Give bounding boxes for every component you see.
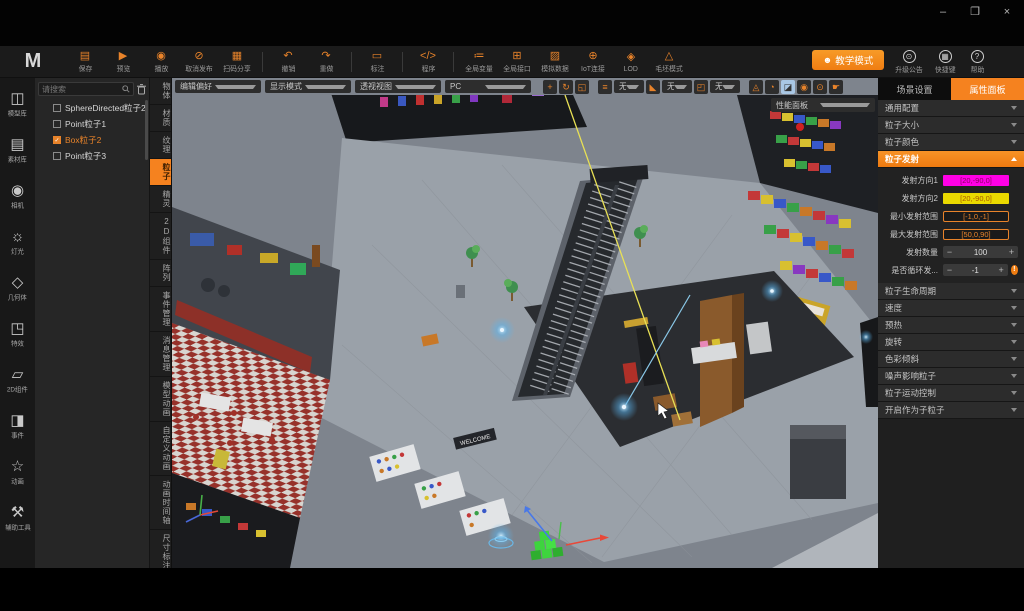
section-color-tilt[interactable]: 色彩倾斜 bbox=[878, 351, 1024, 368]
chevron-down-icon bbox=[722, 85, 735, 89]
search-icon bbox=[122, 85, 130, 93]
geometry-icon: ◇ bbox=[12, 274, 24, 292]
sidebar-item-animation[interactable]: ☆动画 bbox=[0, 450, 35, 494]
edit-preference-dropdown[interactable]: 编辑偏好 bbox=[175, 80, 261, 93]
play-button[interactable]: ◉播放 bbox=[142, 46, 180, 78]
iot-connect-button[interactable]: ⊕IoT连接 bbox=[574, 46, 612, 78]
checkbox[interactable] bbox=[53, 104, 61, 112]
title-bar: – ❐ × bbox=[0, 0, 1024, 46]
toolbar-separator bbox=[351, 52, 352, 72]
section-particle-lifecycle[interactable]: 粒子生命周期 bbox=[878, 283, 1024, 300]
mode-tab-event-manage[interactable]: 事件管理 bbox=[150, 287, 172, 332]
emission-count-stepper[interactable]: − 100 + bbox=[943, 246, 1018, 258]
sidebar-item-asset-library[interactable]: ▤素材库 bbox=[0, 128, 35, 172]
undo-icon: ↶ bbox=[283, 50, 292, 63]
save-button[interactable]: ▤保存 bbox=[66, 46, 104, 78]
section-speed[interactable]: 速度 bbox=[878, 300, 1024, 317]
global-variables-button[interactable]: ≔全局变量 bbox=[460, 46, 498, 78]
mode-tab-dimension[interactable]: 尺寸标注 bbox=[150, 530, 172, 568]
angle-snap-icon[interactable]: ◣ bbox=[646, 80, 660, 94]
tab-scene-settings[interactable]: 场景设置 bbox=[878, 78, 951, 100]
sidebar-item-camera[interactable]: ◉相机 bbox=[0, 174, 35, 218]
section-particle-emission[interactable]: 粒子发射 bbox=[878, 151, 1024, 168]
rough-mode-button[interactable]: △毛坯模式 bbox=[650, 46, 688, 78]
performance-panel-dropdown[interactable]: 性能面板 bbox=[771, 98, 875, 112]
redo-icon: ↷ bbox=[321, 50, 330, 63]
mock-data-button[interactable]: ▨模拟数据 bbox=[536, 46, 574, 78]
decrement-icon[interactable]: − bbox=[943, 246, 956, 258]
perspective-view-dropdown[interactable]: 透视视图 bbox=[355, 80, 441, 93]
toolbar-separator bbox=[402, 52, 403, 72]
tools-icon: ⚒ bbox=[11, 504, 24, 522]
upgrade-notice-icon: ⊙ bbox=[903, 50, 916, 63]
chevron-down-icon bbox=[1011, 306, 1017, 310]
mode-tab-model-animation[interactable]: 模型动画 bbox=[150, 377, 172, 422]
section-sub-particle[interactable]: 开启作为子粒子 bbox=[878, 402, 1024, 419]
mock-data-icon: ▨ bbox=[550, 50, 560, 63]
visibility-icon[interactable]: ◉ bbox=[797, 80, 811, 94]
tab-attribute-panel[interactable]: 属性面板 bbox=[951, 78, 1024, 100]
chevron-down-icon bbox=[1011, 289, 1017, 293]
mode-tab-message-manage[interactable]: 消息管理 bbox=[150, 332, 172, 377]
redo-button[interactable]: ↷重做 bbox=[307, 46, 345, 78]
section-motion-control[interactable]: 粒子运动控制 bbox=[878, 385, 1024, 402]
main-toolbar: M ▤保存 ▶预览 ◉播放 ⊘取消发布 ▦扫码分享 ↶撤销 ↷重做 ▭标注 </… bbox=[0, 46, 1024, 78]
tree-item-spheredirected-particle2[interactable]: SphereDirected粒子2 bbox=[35, 100, 149, 116]
mode-tab-object[interactable]: 物体 bbox=[150, 78, 172, 105]
section-rotation[interactable]: 旋转 bbox=[878, 334, 1024, 351]
ratio-snap-icon[interactable]: ◰ bbox=[694, 80, 708, 94]
chevron-down-icon bbox=[1011, 323, 1017, 327]
tree-item-point-particle3[interactable]: Point粒子3 bbox=[35, 148, 149, 164]
sidebar-item-effects[interactable]: ◳特效 bbox=[0, 312, 35, 356]
mode-tab-custom-animation[interactable]: 自定义动画 bbox=[150, 422, 172, 476]
loop-emission-stepper[interactable]: − -1 + bbox=[943, 264, 1008, 276]
global-interface-icon: ⊞ bbox=[512, 50, 521, 63]
align-list-icon[interactable]: ≡ bbox=[598, 80, 612, 94]
global-interface-button[interactable]: ⊞全局接口 bbox=[498, 46, 536, 78]
left-sidebar: ◫模型库 ▤素材库 ◉相机 ☼灯光 ◇几何体 ◳特效 ▱2D组件 ◨事件 ☆动画… bbox=[0, 78, 35, 568]
gizmo-toggle-icon[interactable]: ◬ bbox=[749, 80, 763, 94]
mode-tab-sprite[interactable]: 精灵 bbox=[150, 186, 172, 213]
section-particle-size[interactable]: 粒子大小 bbox=[878, 117, 1024, 134]
chevron-down-icon bbox=[820, 103, 870, 107]
sidebar-item-events[interactable]: ◨事件 bbox=[0, 404, 35, 448]
annotate-button[interactable]: ▭标注 bbox=[358, 46, 396, 78]
sidebar-item-geometry[interactable]: ◇几何体 bbox=[0, 266, 35, 310]
chevron-down-icon bbox=[215, 85, 256, 89]
chevron-down-icon bbox=[1011, 408, 1017, 412]
sidebar-item-model-library[interactable]: ◫模型库 bbox=[0, 82, 35, 126]
mode-tab-array[interactable]: 阵列 bbox=[150, 260, 172, 287]
warning-icon[interactable]: ! bbox=[1011, 265, 1018, 275]
search-box[interactable] bbox=[38, 82, 134, 96]
teacher-icon: ☻ bbox=[823, 55, 832, 65]
viewport-toolbar: 编辑偏好 显示模式 透视视图 PC + ↻ ◱ ≡ 无 ◣ 无 ◰ 无 ◬ ◔ … bbox=[172, 78, 878, 95]
app-logo: M bbox=[0, 46, 66, 78]
device-dropdown[interactable]: PC bbox=[445, 80, 531, 93]
mode-tab-animation-timeline[interactable]: 动画时间轴 bbox=[150, 476, 172, 530]
emission-section-body: 发射方向1 [20,-90,0] 发射方向2 [20,-90,0] 最小发射范围… bbox=[878, 168, 1024, 283]
snap-dropdown-1[interactable]: 无 bbox=[614, 80, 644, 93]
iot-icon: ⊕ bbox=[588, 50, 597, 63]
chevron-down-icon bbox=[1011, 357, 1017, 361]
chevron-down-icon bbox=[674, 85, 687, 89]
chevron-down-icon bbox=[1011, 106, 1017, 110]
mode-tab-particle[interactable]: 粒子 bbox=[150, 159, 172, 186]
properties-panel: 场景设置 属性面板 通用配置 粒子大小 粒子颜色 粒子发射 发射方向1 [20,… bbox=[878, 78, 1024, 568]
chevron-up-icon bbox=[1011, 157, 1017, 161]
section-preheat[interactable]: 预热 bbox=[878, 317, 1024, 334]
section-particle-color[interactable]: 粒子颜色 bbox=[878, 134, 1024, 151]
mode-tab-2d-component[interactable]: 2D组件 bbox=[150, 213, 172, 260]
chevron-down-icon bbox=[485, 85, 526, 89]
rotate-tool-icon[interactable]: ↻ bbox=[559, 80, 573, 94]
lod-button[interactable]: ◈LOD bbox=[612, 46, 650, 78]
checkbox[interactable] bbox=[53, 152, 61, 160]
chevron-down-icon bbox=[1011, 123, 1017, 127]
trash-icon[interactable] bbox=[137, 84, 146, 95]
upgrade-notice-button[interactable]: ⊙ 升级公告 bbox=[894, 47, 924, 77]
play-icon: ◉ bbox=[156, 50, 166, 63]
tree-item-box-particle2[interactable]: ✓Box粒子2 bbox=[35, 132, 149, 148]
checkbox[interactable] bbox=[53, 120, 61, 128]
chevron-down-icon bbox=[1011, 140, 1017, 144]
annotate-icon: ▭ bbox=[372, 50, 382, 63]
shortcut-keys-icon: ▦ bbox=[939, 50, 952, 63]
camera-icon: ◉ bbox=[11, 182, 24, 200]
light-icon: ☼ bbox=[11, 228, 25, 246]
mode-tab-strip: 物体 材质 纹理 粒子 精灵 2D组件 阵列 事件管理 消息管理 模型动画 自定… bbox=[150, 78, 172, 568]
chevron-down-icon bbox=[305, 85, 346, 89]
undo-button[interactable]: ↶撤销 bbox=[269, 46, 307, 78]
teaching-mode-button[interactable]: ☻ 教学模式 bbox=[812, 50, 884, 70]
qr-share-button[interactable]: ▦扫码分享 bbox=[218, 46, 256, 78]
section-noise-affect[interactable]: 噪声影响粒子 bbox=[878, 368, 1024, 385]
model-library-icon: ◫ bbox=[10, 90, 24, 108]
effects-icon: ◳ bbox=[10, 320, 24, 338]
tree-scrollbar[interactable] bbox=[145, 100, 148, 160]
chevron-down-icon bbox=[1011, 374, 1017, 378]
mode-tab-material[interactable]: 材质 bbox=[150, 105, 172, 132]
decrement-icon[interactable]: − bbox=[943, 264, 956, 276]
chevron-down-icon bbox=[626, 85, 639, 89]
sidebar-item-light[interactable]: ☼灯光 bbox=[0, 220, 35, 264]
qr-share-icon: ▦ bbox=[232, 50, 242, 63]
checkbox-checked[interactable]: ✓ bbox=[53, 136, 61, 144]
asset-library-icon: ▤ bbox=[10, 136, 24, 154]
search-input[interactable] bbox=[42, 85, 122, 94]
snap-dropdown-3[interactable]: 无 bbox=[710, 80, 740, 93]
pan-hand-icon[interactable]: ☛ bbox=[829, 80, 843, 94]
shortcut-keys-button[interactable]: ▦ 快捷键 bbox=[930, 47, 960, 77]
cancel-publish-icon: ⊘ bbox=[194, 50, 203, 63]
chevron-down-icon bbox=[1011, 391, 1017, 395]
code-icon: </> bbox=[420, 50, 436, 63]
snap-dropdown-2[interactable]: 无 bbox=[662, 80, 692, 93]
cancel-publish-button[interactable]: ⊘取消发布 bbox=[180, 46, 218, 78]
focus-target-icon[interactable]: ⊙ bbox=[813, 80, 827, 94]
program-button[interactable]: </>程序 bbox=[409, 46, 447, 78]
stats-toggle-icon[interactable]: ◔ bbox=[765, 80, 779, 94]
lod-icon: ◈ bbox=[627, 51, 635, 64]
mode-tab-texture[interactable]: 纹理 bbox=[150, 132, 172, 159]
emission-direction1-swatch[interactable]: [20,-90,0] bbox=[943, 175, 1009, 186]
scale-tool-icon[interactable]: ◱ bbox=[575, 80, 589, 94]
global-variable-icon: ≔ bbox=[474, 50, 485, 63]
toolbar-separator bbox=[453, 52, 454, 72]
viewport-3d[interactable]: 编辑偏好 显示模式 透视视图 PC + ↻ ◱ ≡ 无 ◣ 无 ◰ 无 ◬ ◔ … bbox=[172, 78, 878, 568]
events-icon: ◨ bbox=[10, 412, 24, 430]
close-button[interactable]: × bbox=[998, 4, 1016, 20]
display-mode-dropdown[interactable]: 显示模式 bbox=[265, 80, 351, 93]
min-emission-range-field[interactable]: [-1,0,-1] bbox=[943, 211, 1009, 222]
section-general-config[interactable]: 通用配置 bbox=[878, 100, 1024, 117]
preview-icon: ▶ bbox=[119, 50, 127, 63]
toolbar-separator bbox=[262, 52, 263, 72]
minimize-button[interactable]: – bbox=[934, 4, 952, 20]
animation-icon: ☆ bbox=[11, 458, 24, 476]
viewport-scene[interactable]: WELCOME bbox=[172, 95, 878, 568]
increment-icon[interactable]: + bbox=[1005, 246, 1018, 258]
preview-button[interactable]: ▶预览 bbox=[104, 46, 142, 78]
app-window: – ❐ × M ▤保存 ▶预览 ◉播放 ⊘取消发布 ▦扫码分享 ↶撤销 ↷重做 … bbox=[0, 0, 1024, 611]
tree-item-point-particle1[interactable]: Point粒子1 bbox=[35, 116, 149, 132]
max-emission-range-field[interactable]: [50,0,90] bbox=[943, 229, 1009, 240]
rough-mode-icon: △ bbox=[665, 50, 673, 63]
components-2d-icon: ▱ bbox=[12, 366, 24, 384]
move-tool-icon[interactable]: + bbox=[543, 80, 557, 94]
sidebar-item-tools[interactable]: ⚒辅助工具 bbox=[0, 496, 35, 540]
help-icon: ? bbox=[971, 50, 984, 63]
perf-panel-toggle-icon[interactable]: ◪ bbox=[781, 80, 795, 94]
save-icon: ▤ bbox=[80, 50, 90, 63]
emission-direction2-swatch[interactable]: [20,-90,0] bbox=[943, 193, 1009, 204]
help-button[interactable]: ? 帮助 bbox=[962, 47, 992, 77]
chevron-down-icon bbox=[395, 85, 436, 89]
chevron-down-icon bbox=[1011, 340, 1017, 344]
restore-button[interactable]: ❐ bbox=[966, 4, 984, 20]
increment-icon[interactable]: + bbox=[995, 264, 1008, 276]
particle-tree-panel: SphereDirected粒子2 Point粒子1 ✓Box粒子2 Point… bbox=[35, 78, 150, 568]
sidebar-item-2d-components[interactable]: ▱2D组件 bbox=[0, 358, 35, 402]
